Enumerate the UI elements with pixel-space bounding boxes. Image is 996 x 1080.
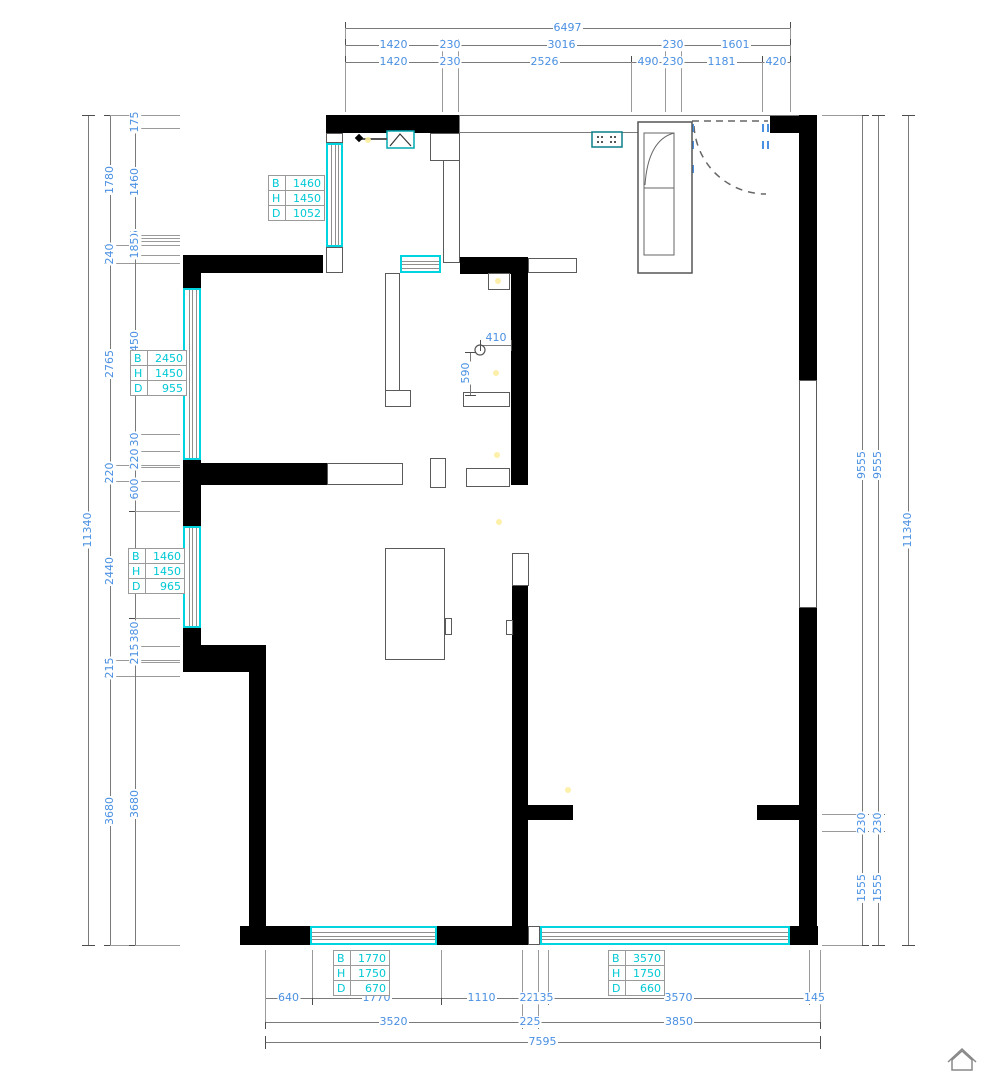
dim-left-mid-label: 3680 <box>104 796 116 826</box>
sink-counter <box>638 122 692 273</box>
window-spec-bedroom3-key: H <box>334 966 351 981</box>
dim-right-inner-label: 1555 <box>856 873 868 903</box>
dim-top-mid-label: 3016 <box>547 39 577 51</box>
dim-left-mid-label: 220 <box>104 462 116 485</box>
window-spec-master-value: 955 <box>148 381 187 396</box>
window-spec-living-value: 3570 <box>626 951 665 966</box>
dim-pipe-410-label: 410 <box>485 332 508 344</box>
dim-top-inner-label: 1420 <box>379 56 409 68</box>
window-spec-master-key: D <box>131 381 148 396</box>
dim-left-mid-label: 240 <box>104 243 116 266</box>
window-spec-living-key: D <box>609 981 626 996</box>
dim-top-inner-label: 230 <box>662 56 685 68</box>
pipe-point-icon <box>475 345 485 355</box>
dim-pipe-590-label: 590 <box>460 362 472 385</box>
entry-door-swing <box>692 121 768 194</box>
dim-top-mid-label: 1601 <box>721 39 751 51</box>
dim-left-total-label: 11340 <box>82 512 94 549</box>
dim-right-mid-label: 9555 <box>872 450 884 480</box>
window-spec-balcony-key: D <box>269 206 286 221</box>
dim-left-mid-label: 2440 <box>104 556 116 586</box>
window-spec-bedroom2-key: D <box>129 579 146 594</box>
dim-left-mid-label: 1780 <box>104 165 116 195</box>
vent-grille-icon <box>592 132 622 147</box>
window-spec-balcony-key: H <box>269 191 286 206</box>
window-spec-bedroom3-value: 670 <box>351 981 390 996</box>
dim-bottom-inner-label: 145 <box>803 992 826 1004</box>
window-spec-balcony-key: B <box>269 176 286 191</box>
window-spec-master-value: 1450 <box>148 366 187 381</box>
window-spec-bedroom2-value: 965 <box>146 579 185 594</box>
dim-top-inner-label: 2526 <box>530 56 560 68</box>
dim-top-mid-label: 230 <box>662 39 685 51</box>
dim-left-mid-label: 215 <box>104 657 116 680</box>
dim-right-total-label: 11340 <box>902 512 914 549</box>
dim-bottom-mid-label: 3850 <box>664 1016 694 1028</box>
window-spec-bedroom3-value: 1750 <box>351 966 390 981</box>
dim-top-mid-label: 230 <box>439 39 462 51</box>
dim-left-inner-label: 185 <box>129 237 141 260</box>
dim-bottom-total-label: 7595 <box>528 1036 558 1048</box>
dim-bottom-inner-label: 3570 <box>664 992 694 1004</box>
dim-right-inner-label: 9555 <box>856 450 868 480</box>
window-spec-balcony-value: 1450 <box>286 191 325 206</box>
dim-top-mid-label: 1420 <box>379 39 409 51</box>
dim-top-total-label: 6497 <box>553 22 583 34</box>
dim-left-inner-label: 220 <box>129 448 141 471</box>
dim-bottom-inner-label: 1110 <box>467 992 497 1004</box>
window-spec-bedroom2: B1460H1450D965 <box>128 548 185 594</box>
window-spec-master: B2450H1450D955 <box>130 350 187 396</box>
window-spec-living-value: 1750 <box>626 966 665 981</box>
dim-top-inner-label: 230 <box>439 56 462 68</box>
door-marks-blue <box>687 124 769 173</box>
dim-top-inner-label: 420 <box>765 56 788 68</box>
dim-left-inner-label: 1460 <box>129 167 141 197</box>
window-spec-balcony: B1460H1450D1052 <box>268 175 325 221</box>
window-spec-bedroom3-key: B <box>334 951 351 966</box>
dim-left-inner-label: 215 <box>129 643 141 666</box>
dim-top-inner-label: 1181 <box>707 56 737 68</box>
window-spec-bedroom2-value: 1450 <box>146 564 185 579</box>
dim-left-inner-label: 3680 <box>129 789 141 819</box>
dim-bottom-inner-label: 135 <box>532 992 555 1004</box>
window-spec-living-value: 660 <box>626 981 665 996</box>
window-spec-living-key: B <box>609 951 626 966</box>
dim-left-inner-label: 380 <box>129 621 141 644</box>
dim-top-inner-label: 490 <box>637 56 660 68</box>
light-point-icons <box>365 137 571 793</box>
dim-right-mid-label: 230 <box>872 811 884 834</box>
dim-left-inner-label: 600 <box>129 478 141 501</box>
floor-plan-canvas: 6497142023030162301601142023025264902301… <box>0 0 996 1080</box>
window-spec-bedroom2-value: 1460 <box>146 549 185 564</box>
fixtures-layer <box>0 0 996 1080</box>
window-spec-master-value: 2450 <box>148 351 187 366</box>
dim-left-mid-label: 2765 <box>104 349 116 379</box>
house-icon <box>948 1049 976 1070</box>
window-spec-bedroom2-key: H <box>129 564 146 579</box>
window-spec-balcony-value: 1052 <box>286 206 325 221</box>
stove-icon <box>355 131 414 148</box>
window-spec-bedroom3: B1770H1750D670 <box>333 950 390 996</box>
window-spec-master-key: H <box>131 366 148 381</box>
window-spec-living: B3570H1750D660 <box>608 950 665 996</box>
window-spec-bedroom3-value: 1770 <box>351 951 390 966</box>
dim-left-inner-label: 175 <box>129 110 141 133</box>
dim-bottom-inner-label: 640 <box>277 992 300 1004</box>
window-spec-balcony-value: 1460 <box>286 176 325 191</box>
window-spec-bedroom3-key: D <box>334 981 351 996</box>
dim-right-inner-label: 230 <box>856 811 868 834</box>
dim-right-mid-label: 1555 <box>872 873 884 903</box>
dim-bottom-mid-label: 225 <box>519 1016 542 1028</box>
window-spec-master-key: B <box>131 351 148 366</box>
window-spec-living-key: H <box>609 966 626 981</box>
window-spec-bedroom2-key: B <box>129 549 146 564</box>
dim-bottom-mid-label: 3520 <box>379 1016 409 1028</box>
